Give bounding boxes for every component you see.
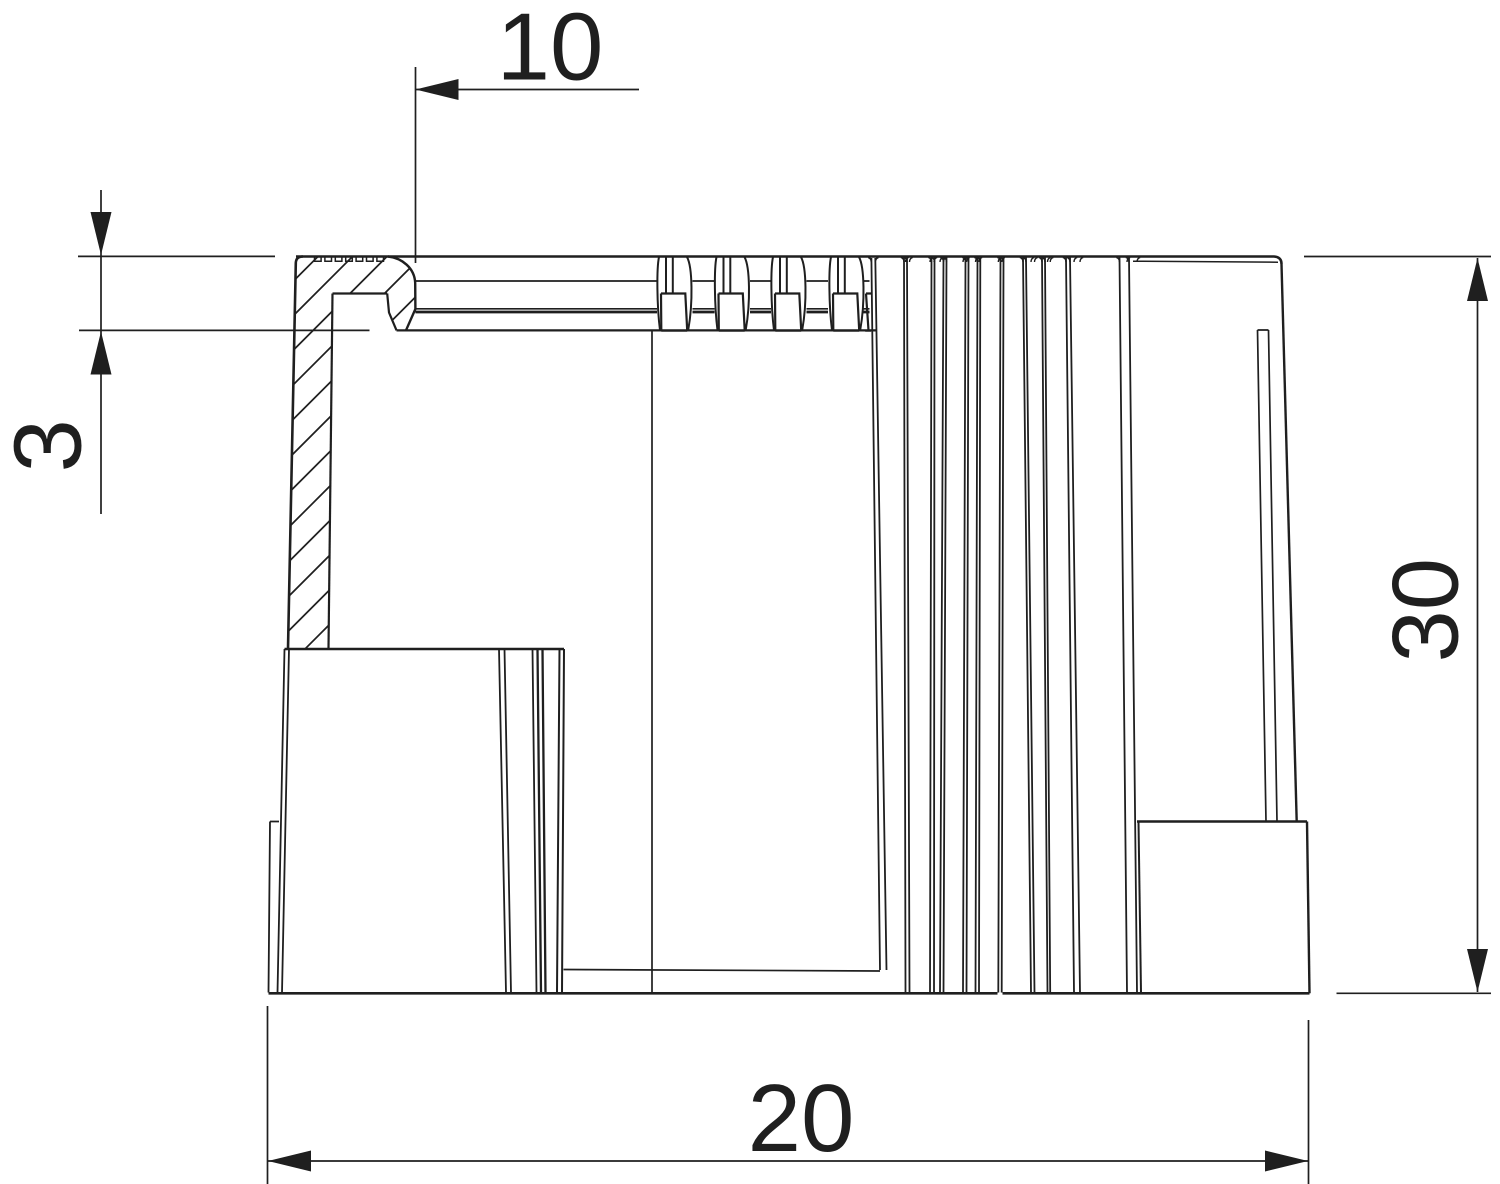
- svg-text:20: 20: [748, 1065, 855, 1172]
- svg-text:3: 3: [0, 419, 102, 472]
- svg-text:10: 10: [497, 0, 604, 101]
- svg-text:30: 30: [1373, 558, 1478, 663]
